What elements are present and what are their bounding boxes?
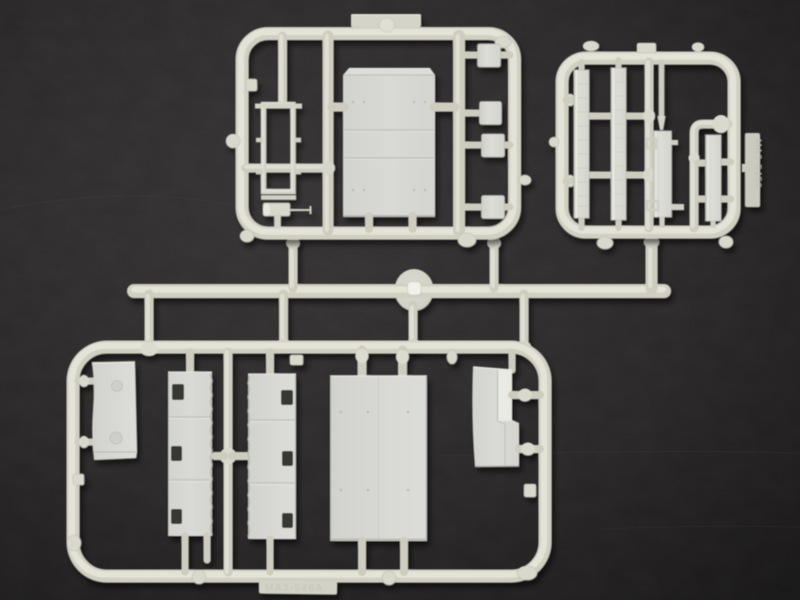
svg-text:MA3-546A: MA3-546A <box>265 583 323 594</box>
svg-text:MA3-5456: MA3-5456 <box>753 139 763 189</box>
